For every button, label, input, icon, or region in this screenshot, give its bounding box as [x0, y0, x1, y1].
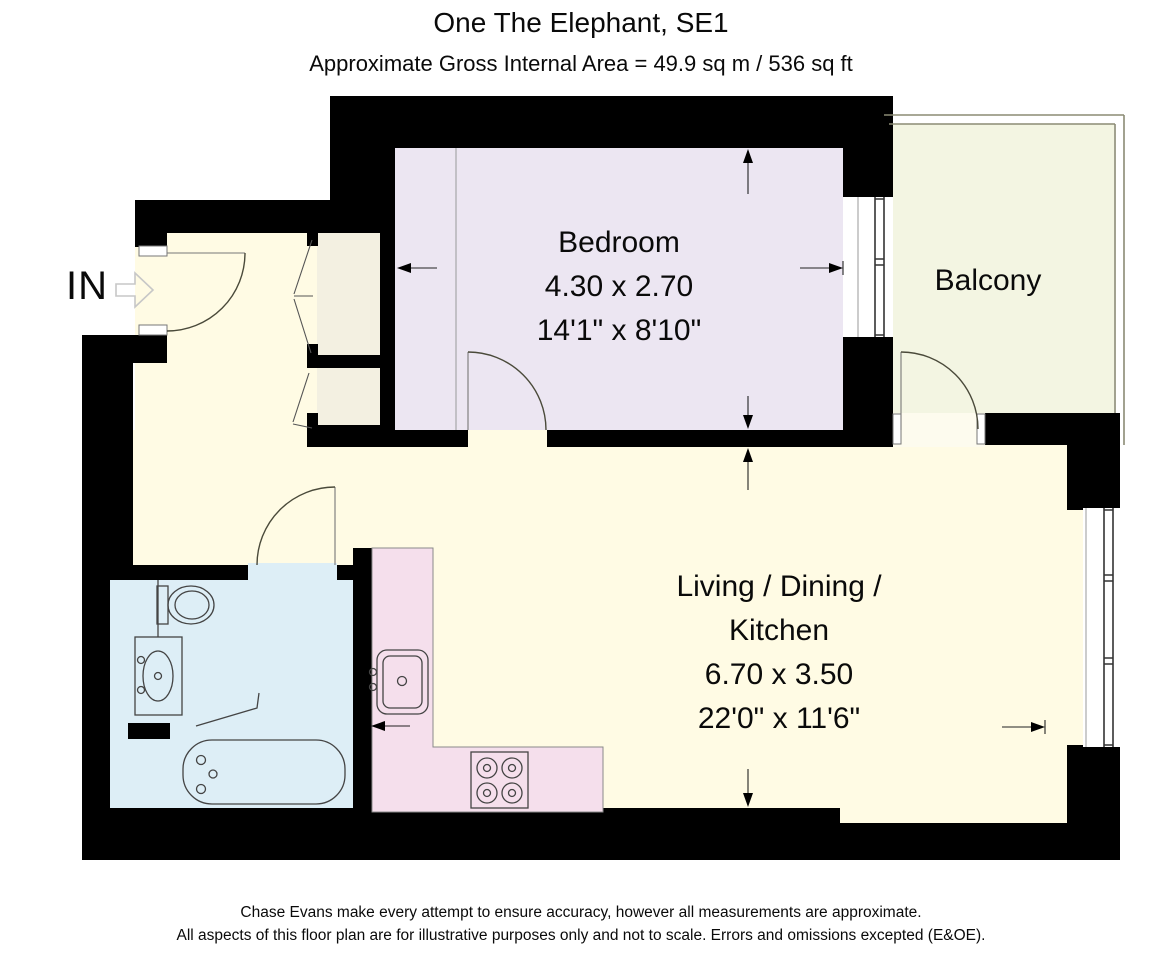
balcony-name: Balcony [888, 259, 1088, 303]
entrance-door [139, 246, 245, 335]
toilet-icon [157, 580, 214, 637]
balcony-door [893, 352, 985, 444]
bathroom-door-arc [257, 487, 335, 565]
living-size-imperial: 22'0" x 11'6" [579, 697, 979, 741]
closet-bifold-doors [293, 240, 313, 428]
living-label: Living / Dining / Kitchen 6.70 x 3.50 22… [579, 565, 979, 741]
bedroom-name: Bedroom [419, 221, 819, 265]
bedroom-size-metric: 4.30 x 2.70 [419, 265, 819, 309]
bedroom-size-imperial: 14'1" x 8'10" [419, 309, 819, 353]
bathtub-icon [183, 740, 345, 804]
disclaimer-line2: All aspects of this floor plan are for i… [0, 927, 1162, 945]
bathroom-door [257, 487, 335, 565]
floorplan-linework [0, 0, 1162, 953]
entrance-door-arc [167, 253, 245, 331]
sink-vanity-icon [135, 637, 182, 715]
shower-screen [196, 693, 259, 726]
living-name-line2: Kitchen [579, 609, 979, 653]
in-arrow-icon [116, 273, 153, 307]
bedroom-label: Bedroom 4.30 x 2.70 14'1" x 8'10" [419, 221, 819, 353]
living-size-metric: 6.70 x 3.50 [579, 653, 979, 697]
living-window [1083, 508, 1122, 747]
bedroom-door-arc [468, 352, 546, 430]
living-name-line1: Living / Dining / [579, 565, 979, 609]
balcony-door-arc [901, 352, 978, 429]
balcony-label: Balcony [888, 259, 1088, 303]
disclaimer-line1: Chase Evans make every attempt to ensure… [0, 904, 1162, 922]
floorplan-canvas: One The Elephant, SE1 Approximate Gross … [0, 0, 1162, 953]
entrance-in-label: IN [66, 264, 108, 309]
bedroom-door [468, 352, 546, 430]
